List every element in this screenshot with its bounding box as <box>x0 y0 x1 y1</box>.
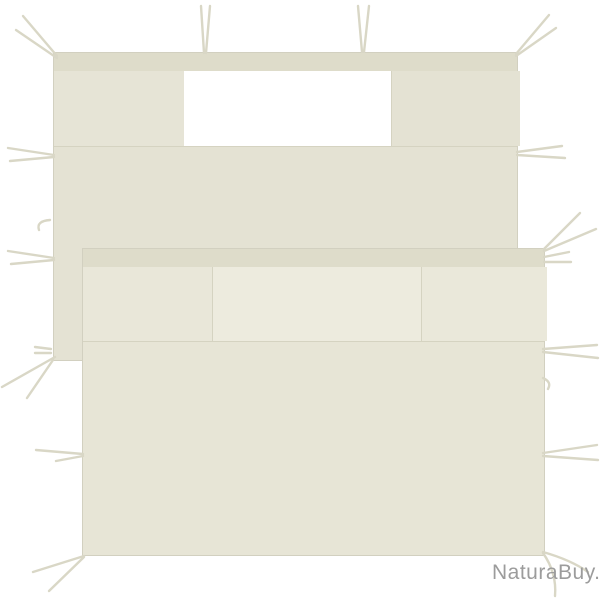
back-panel-top-band <box>54 53 517 72</box>
product-photo: NaturaBuy. <box>0 0 600 600</box>
tie-string <box>8 148 54 155</box>
tie-string <box>8 251 54 258</box>
tie-string <box>33 556 84 572</box>
tie-string <box>201 6 204 53</box>
tie-string <box>544 213 580 249</box>
front-panel-flap-right <box>421 267 547 341</box>
tie-string <box>10 157 54 161</box>
tie-string <box>543 445 597 453</box>
front-panel-flap-left <box>83 267 212 341</box>
watermark: NaturaBuy. <box>492 561 600 585</box>
tie-string <box>543 352 598 358</box>
tie-string <box>27 360 53 398</box>
front-panel-flap-middle <box>212 267 422 341</box>
tie-string <box>56 456 83 461</box>
tie-string <box>516 15 549 54</box>
front-panel-seam <box>83 341 544 342</box>
tie-string <box>517 146 562 152</box>
back-panel-right-section <box>391 71 520 146</box>
sidewall-panel-front <box>82 248 545 556</box>
tie-string <box>364 6 369 52</box>
tie-string <box>206 6 210 53</box>
tie-string <box>516 28 556 56</box>
tie-string <box>38 220 50 230</box>
tie-string <box>517 155 565 158</box>
tie-string <box>23 16 57 56</box>
tie-string <box>543 456 598 460</box>
tie-string <box>11 260 54 264</box>
tie-string <box>544 229 596 251</box>
tie-string <box>16 30 57 58</box>
tie-string <box>358 6 362 52</box>
tie-string <box>36 450 83 454</box>
tie-string <box>49 557 84 591</box>
back-panel-left-section <box>54 71 185 146</box>
tie-string <box>543 345 597 349</box>
tie-string <box>35 347 51 349</box>
tie-string <box>2 357 55 387</box>
tie-string <box>544 252 569 257</box>
front-panel-top-band <box>83 249 544 268</box>
window-opening <box>184 71 391 146</box>
back-panel-seam <box>54 146 517 147</box>
